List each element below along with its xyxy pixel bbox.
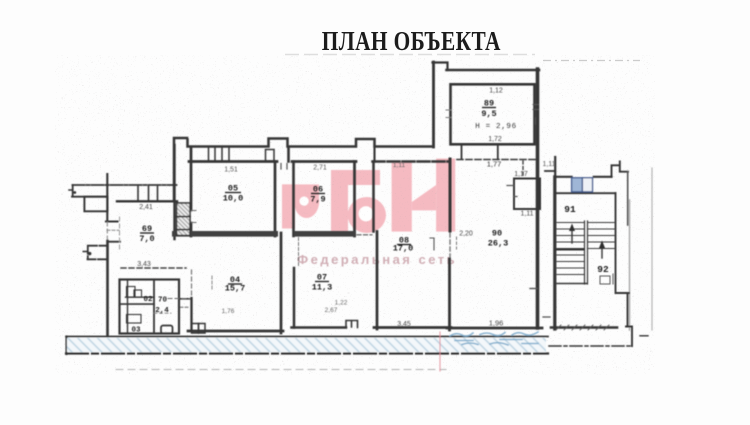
svg-text:2,67: 2,67 bbox=[325, 307, 338, 314]
svg-text:26,3: 26,3 bbox=[488, 239, 508, 249]
svg-text:70: 70 bbox=[158, 297, 168, 305]
svg-text:3,43: 3,43 bbox=[137, 261, 151, 268]
svg-text:91: 91 bbox=[564, 204, 576, 215]
svg-text:1,76: 1,76 bbox=[222, 308, 235, 315]
svg-text:1,11: 1,11 bbox=[520, 211, 533, 218]
svg-text:02: 02 bbox=[143, 296, 153, 304]
svg-text:1,17: 1,17 bbox=[514, 171, 528, 178]
svg-text:1,11: 1,11 bbox=[542, 161, 555, 168]
svg-text:17,0: 17,0 bbox=[393, 244, 413, 254]
svg-text:1,96: 1,96 bbox=[489, 319, 504, 328]
svg-text:Н = 2,96: Н = 2,96 bbox=[475, 123, 517, 131]
svg-text:03: 03 bbox=[131, 327, 141, 335]
svg-text:2,20: 2,20 bbox=[459, 231, 473, 238]
svg-text:1,22: 1,22 bbox=[335, 300, 348, 307]
svg-text:3,45: 3,45 bbox=[397, 321, 411, 328]
svg-text:7,0: 7,0 bbox=[139, 234, 154, 244]
svg-text:1,77: 1,77 bbox=[487, 160, 502, 169]
svg-text:15,7: 15,7 bbox=[225, 284, 245, 294]
svg-text:2,71: 2,71 bbox=[313, 165, 327, 172]
svg-text:2,4: 2,4 bbox=[155, 307, 169, 315]
svg-text:1,11: 1,11 bbox=[393, 162, 406, 169]
svg-text:7,9: 7,9 bbox=[310, 195, 325, 205]
svg-text:9,5: 9,5 bbox=[481, 109, 496, 119]
svg-text:11,3: 11,3 bbox=[312, 283, 332, 293]
svg-text:90: 90 bbox=[492, 229, 502, 239]
svg-text:1,12: 1,12 bbox=[489, 88, 503, 95]
svg-text:92: 92 bbox=[597, 264, 609, 275]
svg-text:1,72: 1,72 bbox=[488, 136, 502, 143]
svg-text:2,41: 2,41 bbox=[139, 204, 153, 211]
svg-text:1,51: 1,51 bbox=[224, 167, 238, 174]
svg-text:10,0: 10,0 bbox=[223, 194, 243, 204]
